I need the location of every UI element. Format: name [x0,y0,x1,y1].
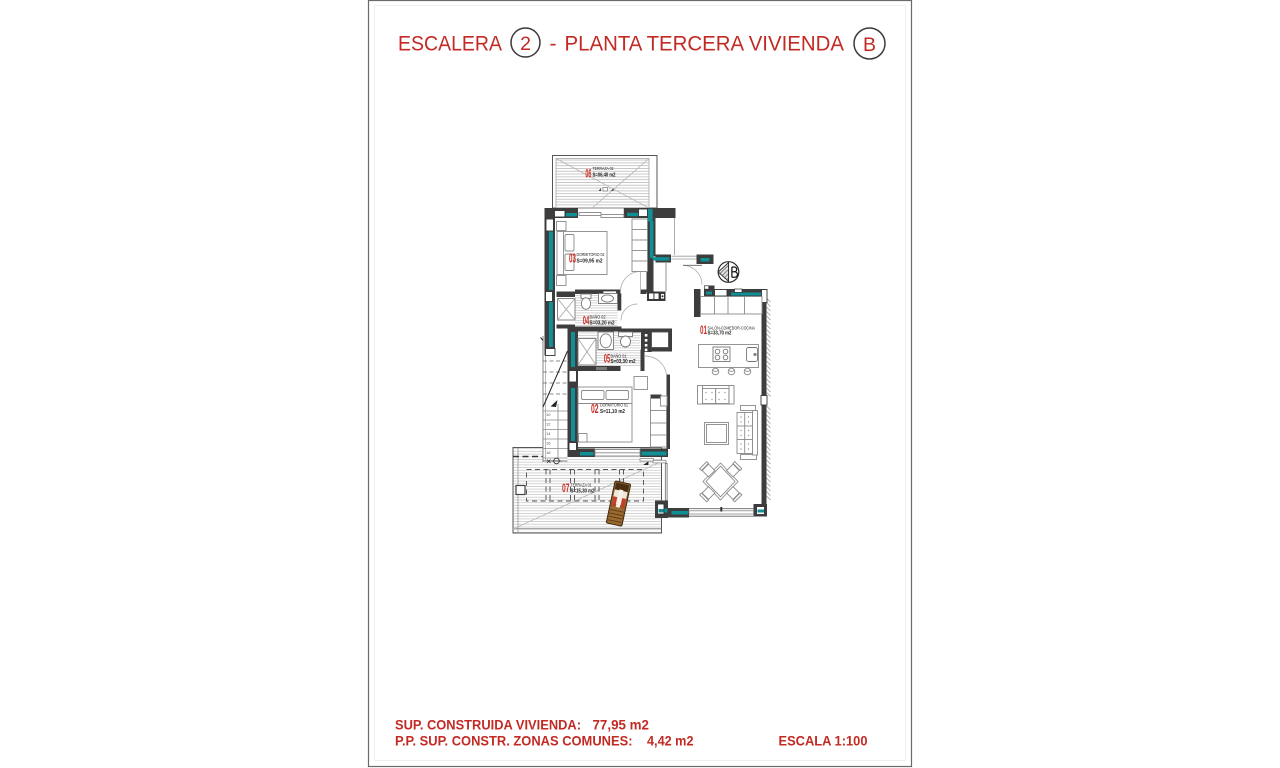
svg-text:PLANTA TERCERA VIVIENDA: PLANTA TERCERA VIVIENDA [565,33,845,56]
svg-text:B: B [863,34,876,56]
svg-text:DORMITORIO 02: DORMITORIO 02 [577,252,605,257]
svg-text:02: 02 [591,401,599,416]
svg-text:BAÑO 01: BAÑO 01 [611,354,627,359]
svg-text:S=15,30 m2: S=15,30 m2 [571,489,595,495]
svg-text:05: 05 [604,352,611,366]
svg-text:S=33,70 m2: S=33,70 m2 [708,331,732,337]
svg-text:4,42 m2: 4,42 m2 [647,734,694,749]
svg-text:2: 2 [520,33,531,55]
svg-text:10: 10 [546,413,551,417]
svg-text:77,95 m2: 77,95 m2 [593,718,650,733]
svg-text:12: 12 [546,423,551,427]
svg-text:16: 16 [546,442,551,446]
svg-text:TERRAZA 02: TERRAZA 02 [593,166,614,171]
svg-text:07: 07 [562,481,570,495]
svg-text:14: 14 [546,432,551,436]
svg-text:BAÑO 02: BAÑO 02 [590,315,606,320]
svg-text:S=03,20 m2: S=03,20 m2 [590,321,615,327]
svg-text:ESCALA 1:100: ESCALA 1:100 [779,734,868,749]
svg-text:SUP. CONSTRUIDA VIVIENDA:: SUP. CONSTRUIDA VIVIENDA: [395,718,581,733]
svg-text:P.P. SUP. CONSTR. ZONAS COMUNE: P.P. SUP. CONSTR. ZONAS COMUNES: [395,734,633,749]
svg-text:01: 01 [700,325,707,337]
svg-text:-: - [550,33,557,56]
svg-text:S=11,10 m2: S=11,10 m2 [600,409,625,415]
svg-text:ESCALERA: ESCALERA [398,33,502,56]
svg-text:03: 03 [569,251,576,266]
svg-text:S=09,95 m2: S=09,95 m2 [577,259,603,265]
svg-text:06: 06 [585,168,591,180]
svg-text:18: 18 [546,451,551,455]
svg-text:04: 04 [583,314,590,328]
svg-text:S=03,30 m2: S=03,30 m2 [611,359,636,365]
svg-text:TERRAZA 01: TERRAZA 01 [571,483,592,488]
svg-text:DORMITORIO 01: DORMITORIO 01 [600,403,628,408]
svg-text:S=06,40 m2: S=06,40 m2 [593,173,616,179]
